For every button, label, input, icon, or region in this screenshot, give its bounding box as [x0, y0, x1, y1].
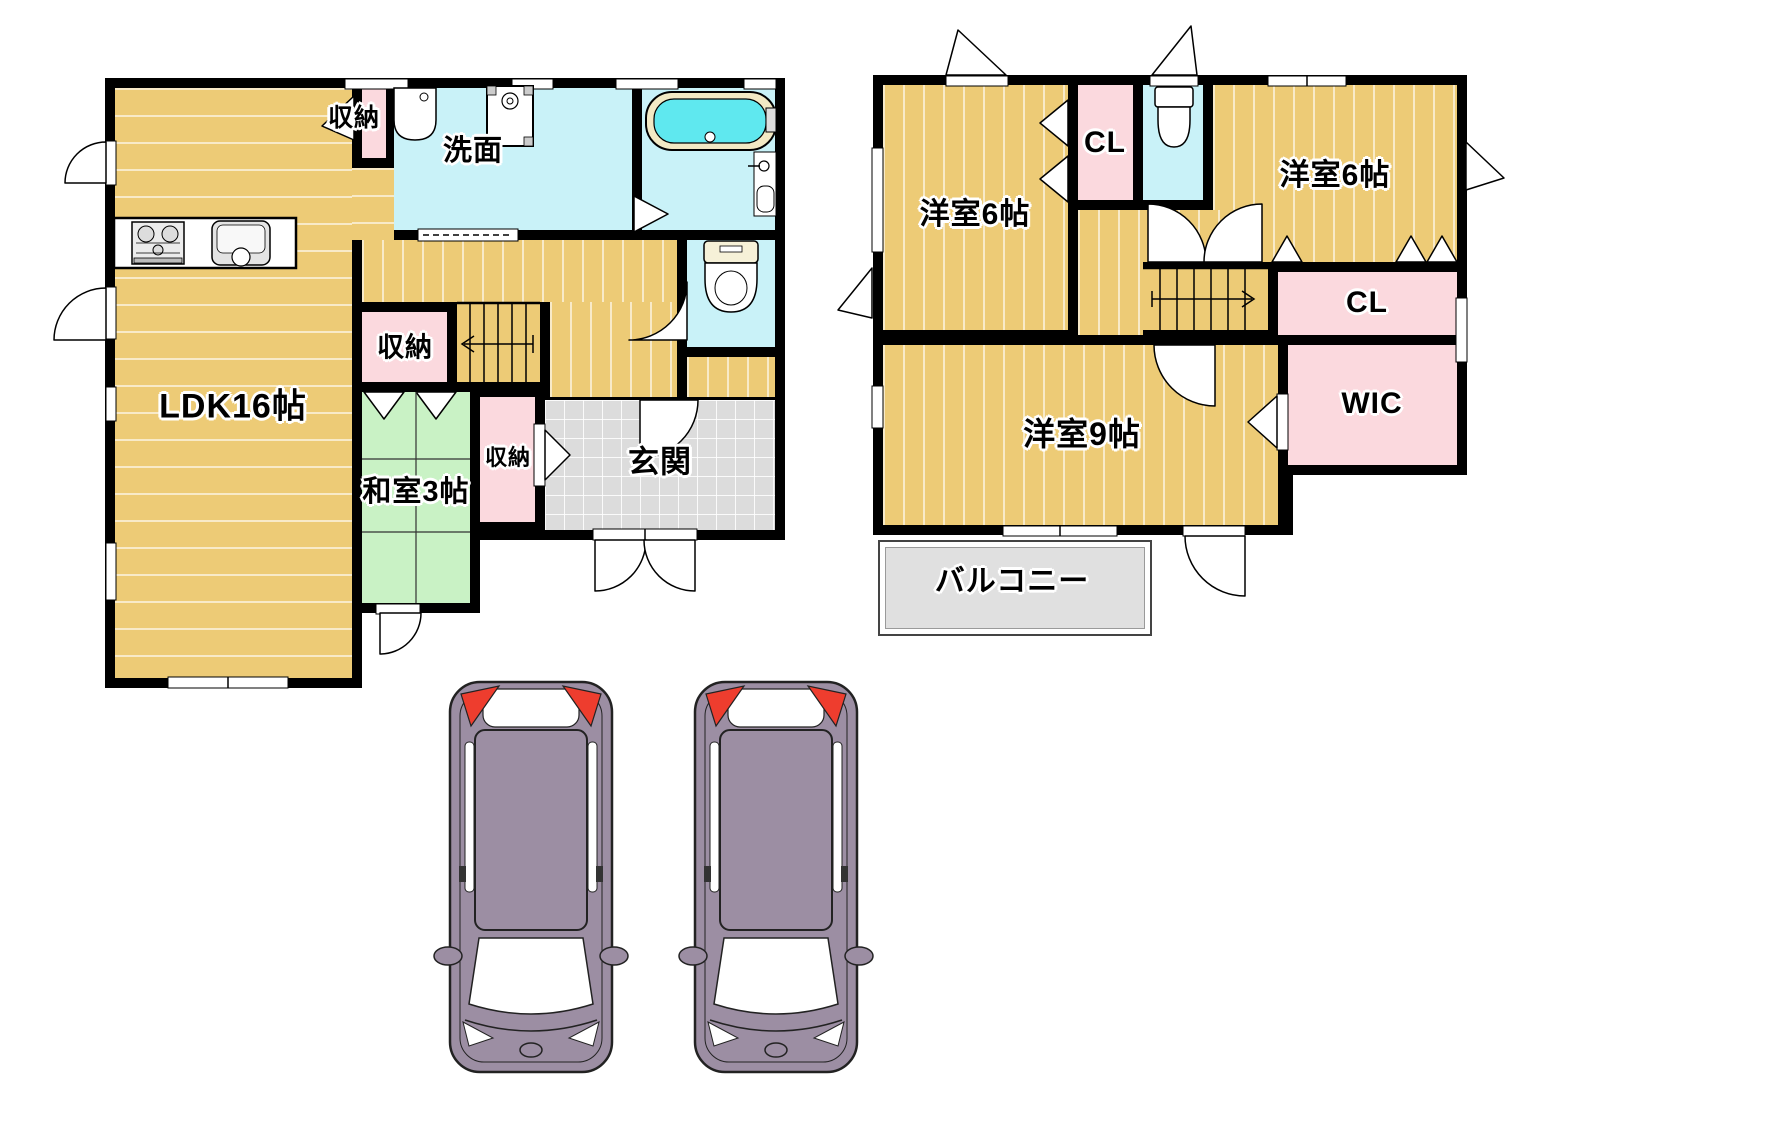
- kitchen-counter: [114, 218, 296, 268]
- bath-counter: [748, 152, 776, 216]
- stove-icon: [132, 222, 184, 264]
- label-entrance: 玄関: [628, 437, 692, 482]
- bathtub-icon: [646, 92, 776, 150]
- label-closet-entry: 収納: [485, 440, 531, 472]
- toilet-2f-icon: [1155, 87, 1193, 147]
- stairs-2f: [1143, 267, 1268, 330]
- label-bedroom6-left: 洋室6帖: [920, 189, 1031, 233]
- label-bedroom9: 洋室9帖: [1023, 409, 1141, 455]
- label-cl1: CL: [1084, 126, 1126, 160]
- vanity-sink-icon: [394, 88, 436, 140]
- car-2: [679, 682, 873, 1072]
- fixtures-layer: [0, 0, 1786, 1128]
- label-cl2: CL: [1346, 286, 1388, 320]
- car-1: [434, 682, 628, 1072]
- label-closet-top: 収納: [328, 98, 380, 134]
- label-closet-hall: 収納: [377, 326, 433, 365]
- sliding-door-washroom: [418, 229, 518, 241]
- label-washroom: 洗面: [443, 127, 503, 169]
- sink-icon: [212, 221, 270, 266]
- toilet-1f-icon: [704, 241, 758, 312]
- label-washitsu: 和室3帖: [362, 468, 469, 510]
- floor-plan-canvas: LDK16帖 収納 洗面 収納 和室3帖 収納 玄関 洋室6帖 CL 洋室6帖 …: [0, 0, 1786, 1128]
- label-balcony: バルコニー: [935, 556, 1089, 600]
- doors-1f: [54, 96, 698, 654]
- label-wic: WIC: [1341, 387, 1402, 421]
- windows: [106, 76, 1467, 688]
- label-ldk: LDK16帖: [159, 379, 307, 428]
- stairs-1f: [457, 302, 540, 382]
- label-bedroom6-right: 洋室6帖: [1280, 150, 1391, 194]
